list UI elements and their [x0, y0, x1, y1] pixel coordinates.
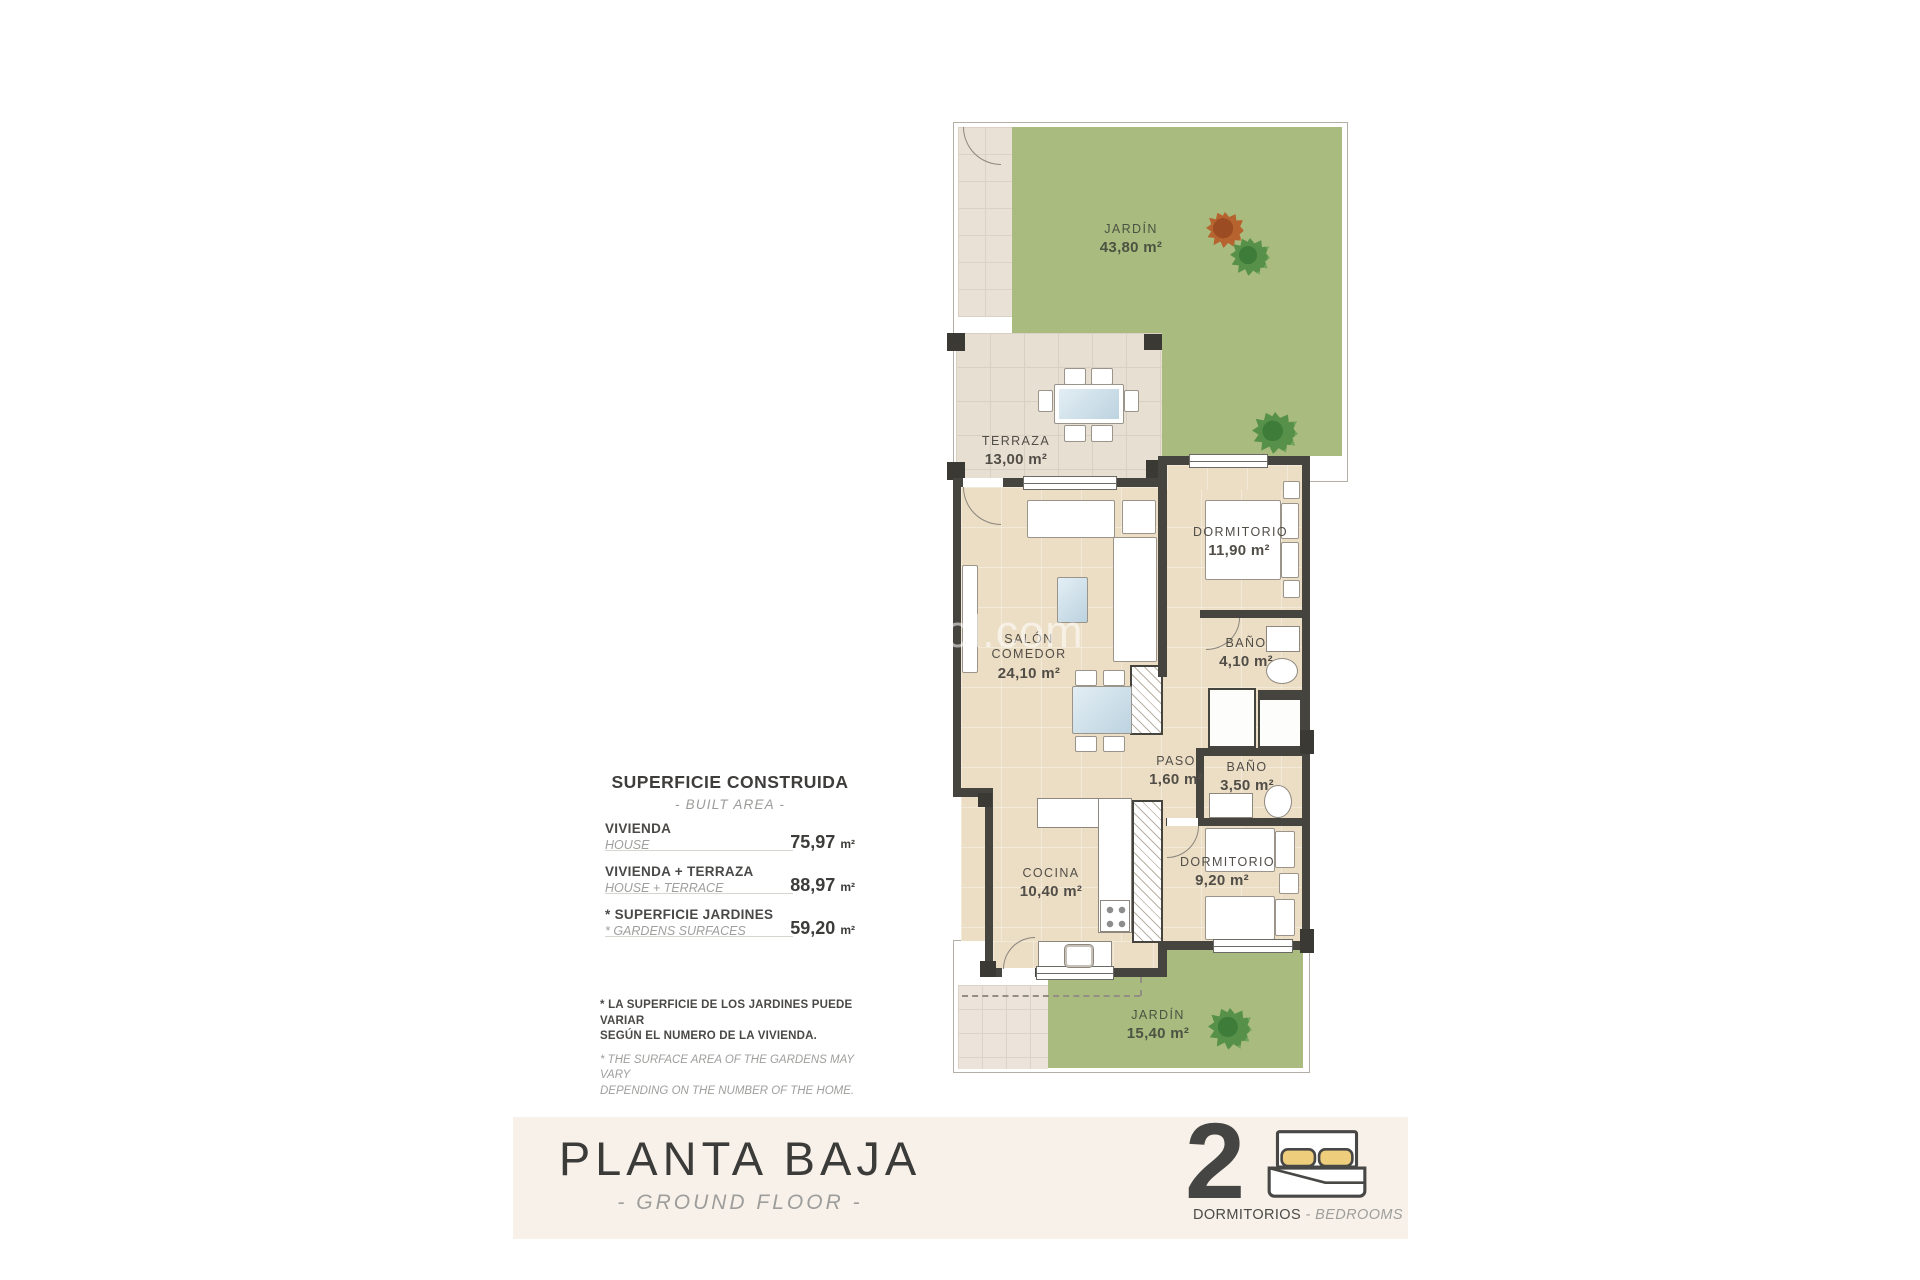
dining-chair [1103, 670, 1125, 686]
kitchen-sink [1064, 944, 1094, 968]
wall-segment [1158, 465, 1167, 677]
dining-table [1072, 686, 1132, 734]
area-row-vivienda-terraza: VIVIENDA + TERRAZA HOUSE + TERRACE 88,97… [605, 864, 855, 898]
area-value: 59,20 m² [790, 918, 855, 939]
footnote-en: * THE SURFACE AREA OF THE GARDENS MAY VA… [600, 1053, 880, 1100]
room-label-jardin-top: JARDÍN 43,80 m² [1078, 222, 1184, 258]
kitchen-door-opening [1002, 968, 1035, 977]
wall-segment [1204, 748, 1302, 756]
pillow [1275, 831, 1295, 868]
room-label-bano1: BAÑO 4,10 m² [1218, 636, 1274, 672]
pillar [980, 961, 996, 977]
pillar [947, 333, 965, 351]
area-row-vivienda: VIVIENDA HOUSE 75,97 m² [605, 821, 855, 855]
room-label-bano2: BAÑO 3,50 m² [1218, 760, 1276, 796]
terrace-chair [1091, 368, 1113, 385]
dining-chair [1075, 736, 1097, 752]
room-label-terraza: TERRAZA 13,00 m² [970, 434, 1062, 470]
shower [1258, 690, 1302, 748]
row-rule [605, 936, 793, 937]
living-room-window [1023, 476, 1117, 490]
terrace-chair [1091, 425, 1113, 442]
terrace-table [1054, 384, 1124, 424]
pillar [1300, 730, 1314, 754]
area-row-jardines: * SUPERFICIE JARDINES * GARDENS SURFACES… [605, 907, 855, 941]
footnotes: * LA SUPERFICIE DE LOS JARDINES PUEDE VA… [600, 998, 880, 1099]
bedrooms-count: 2 [1185, 1107, 1245, 1215]
bed-icon [1265, 1129, 1369, 1203]
terrace-table-glass [1059, 389, 1119, 419]
armchair [1122, 500, 1156, 534]
pillar [1300, 929, 1314, 953]
terrace-chair [1064, 425, 1086, 442]
front-door-opening [963, 478, 1003, 487]
room-label-dormitorio1: DORMITORIO 11,90 m² [1193, 525, 1285, 561]
single-bed [1205, 896, 1275, 940]
plan-subtitle: - GROUND FLOOR - [513, 1191, 967, 1215]
stove [1100, 900, 1130, 932]
wall-segment [1200, 610, 1302, 618]
watermark: sdesol.com [846, 606, 1084, 658]
area-value: 88,97 m² [790, 875, 855, 896]
floor-plan-page: JARDÍN 43,80 m² TERRAZA 13,00 m² SALÓN C… [0, 0, 1920, 1280]
room-label-paso: PASO 1,60 m² [1147, 754, 1205, 790]
shower-ledge [1260, 692, 1300, 700]
plan-title: PLANTA BAJA [513, 1131, 967, 1186]
built-area-subtitle: - BUILT AREA - [605, 797, 855, 812]
wall-segment [1302, 456, 1310, 953]
footnote-es: * LA SUPERFICIE DE LOS JARDINES PUEDE VA… [600, 998, 880, 1045]
terrace-chair [1038, 390, 1053, 412]
room-label-dormitorio2: DORMITORIO 9,20 m² [1180, 855, 1264, 891]
nightstand [1279, 873, 1299, 894]
row-rule [605, 850, 793, 851]
nightstand [1283, 580, 1300, 598]
area-value: 75,97 m² [790, 832, 855, 853]
walkway-threshold [958, 317, 1012, 333]
bathroom-sink [1209, 793, 1253, 818]
row-rule [605, 893, 793, 894]
pillar [1144, 334, 1162, 350]
shower [1208, 688, 1256, 748]
pillow [1275, 899, 1295, 936]
garden-boundary-dashed [962, 995, 1140, 999]
wall-segment [1158, 941, 1167, 977]
terrace-chair [1064, 368, 1086, 385]
bedroom2-window [1213, 939, 1293, 953]
kitchen-window [1036, 966, 1114, 980]
bedroom1-floor-strip [1167, 465, 1302, 490]
garden-boundary-dashed-v [1140, 977, 1144, 996]
built-area-panel: SUPERFICIE CONSTRUIDA - BUILT AREA - VIV… [605, 772, 855, 941]
corner-sofa [1113, 537, 1157, 662]
bedroom2-door-opening [1167, 818, 1198, 826]
sofa [1027, 500, 1115, 538]
room-label-cocina: COCINA 10,40 m² [1018, 866, 1084, 902]
nightstand [1283, 481, 1300, 499]
dining-chair [1103, 736, 1125, 752]
pantry-unit [1132, 800, 1163, 943]
room-label-jardin-bottom: JARDÍN 15,40 m² [1108, 1008, 1208, 1044]
bedrooms-label: DORMITORIOS - BEDROOMS [1193, 1207, 1373, 1223]
pillar [978, 793, 992, 807]
terrace-chair [1124, 390, 1139, 412]
dining-chair [1075, 670, 1097, 686]
bedroom1-window [1189, 454, 1268, 468]
built-area-title: SUPERFICIE CONSTRUIDA [605, 772, 855, 793]
title-banner: PLANTA BAJA - GROUND FLOOR - 2 DORMITORI… [513, 1117, 1408, 1239]
wall-segment [985, 793, 993, 976]
